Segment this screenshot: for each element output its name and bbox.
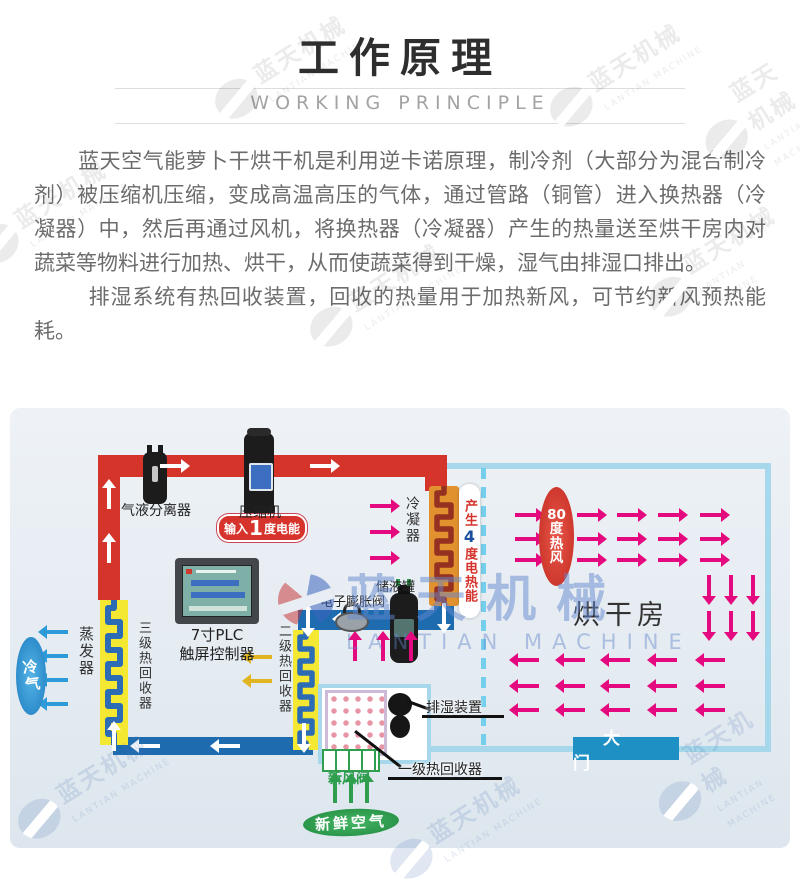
separator-port-icon [147, 445, 152, 453]
hot-left-arrow-icon [517, 684, 539, 688]
pipe-flow-arrow-icon [107, 487, 111, 509]
fresh-air-label: 新鲜空气 [314, 810, 387, 835]
gas-liquid-separator [143, 452, 167, 504]
liquid-tank [390, 593, 418, 663]
plc-label-line1: 7寸PLC [191, 626, 243, 644]
hot-right-arrow-icon [577, 513, 599, 517]
pipe-flow-arrow-icon [306, 607, 310, 629]
separator-label: 气液分离器 [113, 500, 199, 520]
pipe-flow-arrow-icon [218, 744, 240, 748]
recovery1-label: 一级热回收器 [398, 759, 482, 779]
page-subtitle: WORKING PRINCIPLE [0, 92, 800, 114]
hot-left-arrow-icon [563, 684, 585, 688]
hot-right-arrow-icon [617, 558, 639, 562]
hot-down-arrow-icon [707, 575, 711, 597]
separator-sight-glass-icon [152, 466, 158, 482]
hot-left-arrow-icon [703, 684, 725, 688]
plc-controller [175, 558, 259, 624]
intro-text: 蓝天空气能萝卜干烘干机是利用逆卡诺原理，制冷剂（大部分为混合制冷剂）被压缩机压缩… [34, 144, 766, 348]
drying-room-right-wall [765, 463, 771, 752]
working-principle-diagram: 气液分离器 压缩机 输入1度电能 冷凝器 产生4度电热能 储液罐 电子膨胀阀 [10, 408, 790, 848]
condenser-in-arrow-icon [370, 530, 392, 534]
door-bar: 大门 [573, 737, 679, 760]
valve-body-icon [335, 612, 369, 632]
cold-left-arrow-icon [46, 702, 68, 706]
hot-right-arrow-icon [515, 513, 537, 517]
hot-left-arrow-icon [655, 658, 677, 662]
expansion-valve-label: 电子膨胀阀 [320, 591, 385, 610]
hot-right-arrow-icon [617, 513, 639, 517]
intro-paragraph-1: 蓝天空气能萝卜干烘干机是利用逆卡诺原理，制冷剂（大部分为混合制冷剂）被压缩机压缩… [34, 144, 766, 280]
hot-down-arrow-icon [729, 575, 733, 597]
hot-right-arrow-icon [577, 537, 599, 541]
hot-left-arrow-icon [703, 708, 725, 712]
brand-logo-icon [0, 215, 26, 271]
badge-prefix: 输入 [224, 520, 248, 537]
hot-right-arrow-icon [577, 558, 599, 562]
cold-pipe-horizontal [298, 610, 454, 630]
compressor-cap-icon [247, 428, 271, 436]
evaporator-label: 蒸发器 [76, 626, 97, 677]
hot-right-arrow-icon [617, 537, 639, 541]
hot-right-arrow-icon [700, 558, 722, 562]
pipe-flow-arrow-icon [302, 723, 306, 745]
cold-left-arrow-icon [46, 654, 68, 658]
hot-left-arrow-icon [608, 658, 630, 662]
hot-left-arrow-icon [517, 658, 539, 662]
exhaust-label: 排湿装置 [426, 697, 482, 717]
valve-up-arrow-icon [353, 639, 357, 661]
separator-port-icon [158, 445, 163, 453]
divider-top [115, 88, 685, 89]
pipe-flow-arrow-icon [138, 744, 160, 748]
fresh-air-ellipse: 新鲜空气 [302, 807, 399, 839]
heat-output-badge: 产生4度电热能 [459, 484, 480, 618]
pipe-flow-arrow-icon [442, 603, 446, 625]
page-title: 工作原理 [0, 24, 800, 84]
hot-left-arrow-icon [563, 708, 585, 712]
hot-right-arrow-icon [658, 558, 680, 562]
condenser-in-arrow-icon [370, 556, 392, 560]
pipe-flow-arrow-icon [107, 541, 111, 563]
page: 工作原理 WORKING PRINCIPLE 蓝天空气能萝卜干烘干机是利用逆卡诺… [0, 0, 800, 867]
cold-left-arrow-icon [46, 630, 68, 634]
cold-left-arrow-icon [46, 678, 68, 682]
cold-air-label: 冷气 [18, 658, 44, 695]
hot-left-arrow-icon [703, 658, 725, 662]
plc-screen [182, 565, 252, 617]
hot-left-arrow-icon [655, 708, 677, 712]
hot-left-arrow-icon [608, 708, 630, 712]
compressor-label: 压缩机 [232, 502, 288, 522]
condenser-in-arrow-icon [370, 504, 392, 508]
condenser-label: 冷凝器 [402, 496, 422, 544]
hot-right-arrow-icon [658, 537, 680, 541]
recovery3-label: 三级热回收器 [134, 621, 153, 711]
valve-up-arrow-icon [409, 639, 413, 661]
fresh-valve-label: 新风阀 [322, 768, 376, 788]
hot-right-arrow-icon [515, 558, 537, 562]
pipe-flow-arrow-icon [112, 729, 116, 751]
hot-air-ellipse: 80 度 热 风 [539, 487, 574, 586]
hot-right-arrow-icon [700, 537, 722, 541]
drying-room-label: 烘干房 [573, 593, 669, 632]
compressor-sticker-icon [249, 463, 273, 491]
condenser-coil [429, 486, 459, 606]
exhaust-fan-icon [390, 715, 410, 738]
pipe-flow-arrow-icon [160, 464, 182, 468]
intro-paragraph-2: 排湿系统有热回收装置，回收的热量用于加热新风，可节约新风预热能耗。 [34, 280, 766, 348]
hot-down-arrow-icon [751, 575, 755, 597]
divider-bottom [115, 123, 685, 124]
hot-left-arrow-icon [517, 708, 539, 712]
hot-down-arrow-icon [707, 611, 711, 633]
hot-left-arrow-icon [563, 658, 585, 662]
drying-room-top-wall [447, 463, 771, 469]
recovery2-left-arrow-icon [250, 679, 272, 683]
exhaust-fan-icon [388, 693, 412, 716]
badge-suffix: 度电能 [264, 520, 300, 537]
hot-down-arrow-icon [751, 611, 755, 633]
recovery2-label: 二级热回收器 [274, 624, 293, 714]
hot-down-arrow-icon [729, 611, 733, 633]
hot-left-arrow-icon [655, 684, 677, 688]
hot-right-arrow-icon [515, 537, 537, 541]
pipe-flow-arrow-icon [310, 464, 332, 468]
plc-label: 7寸PLC 触屏控制器 [158, 626, 276, 664]
cold-air-ellipse: 冷气 [16, 637, 46, 715]
plc-label-line2: 触屏控制器 [179, 645, 254, 663]
hot-right-arrow-icon [700, 513, 722, 517]
hot-left-arrow-icon [608, 684, 630, 688]
valve-up-arrow-icon [381, 639, 385, 661]
recovery2-coil [293, 630, 319, 750]
hot-right-arrow-icon [658, 513, 680, 517]
